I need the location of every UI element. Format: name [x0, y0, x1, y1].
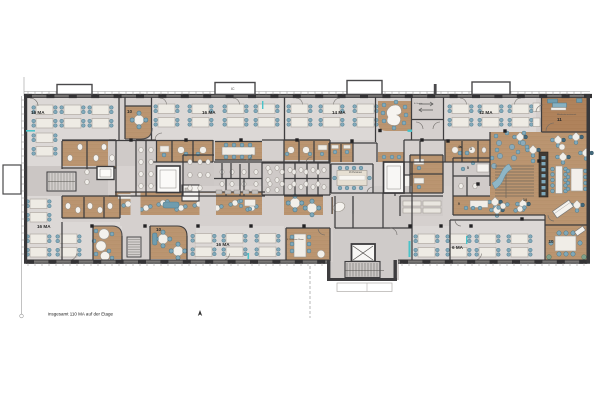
svg-text:16 MA: 16 MA: [37, 224, 51, 229]
svg-text:16 MA: 16 MA: [31, 110, 45, 115]
svg-text:5: 5: [467, 166, 469, 170]
svg-text:Mitarbeiterrestaurant: Mitarbeiterrestaurant: [557, 113, 577, 116]
svg-text:16 Personen: 16 Personen: [349, 171, 363, 174]
svg-text:10: 10: [549, 239, 555, 244]
svg-text:14: 14: [523, 198, 527, 202]
svg-text:10: 10: [156, 227, 162, 232]
svg-text:8 Personen Raum: 8 Personen Raum: [287, 238, 304, 241]
svg-text:14 MA: 14 MA: [332, 110, 346, 115]
svg-text:12 MA: 12 MA: [479, 110, 493, 115]
svg-text:11: 11: [557, 117, 562, 122]
svg-text:insgesamt 110 MA auf der Etage: insgesamt 110 MA auf der Etage: [48, 312, 113, 317]
svg-text:9: 9: [458, 202, 460, 206]
svg-text:E-Geräte: E-Geräte: [414, 102, 423, 105]
svg-text:16 MA: 16 MA: [202, 110, 216, 115]
svg-text:6 MA: 6 MA: [452, 245, 464, 250]
svg-text:3: 3: [470, 147, 472, 151]
svg-text:16 MA: 16 MA: [216, 242, 230, 247]
svg-text:4a: 4a: [458, 145, 462, 149]
svg-text:IC: IC: [231, 87, 235, 91]
svg-text:10: 10: [127, 109, 133, 114]
